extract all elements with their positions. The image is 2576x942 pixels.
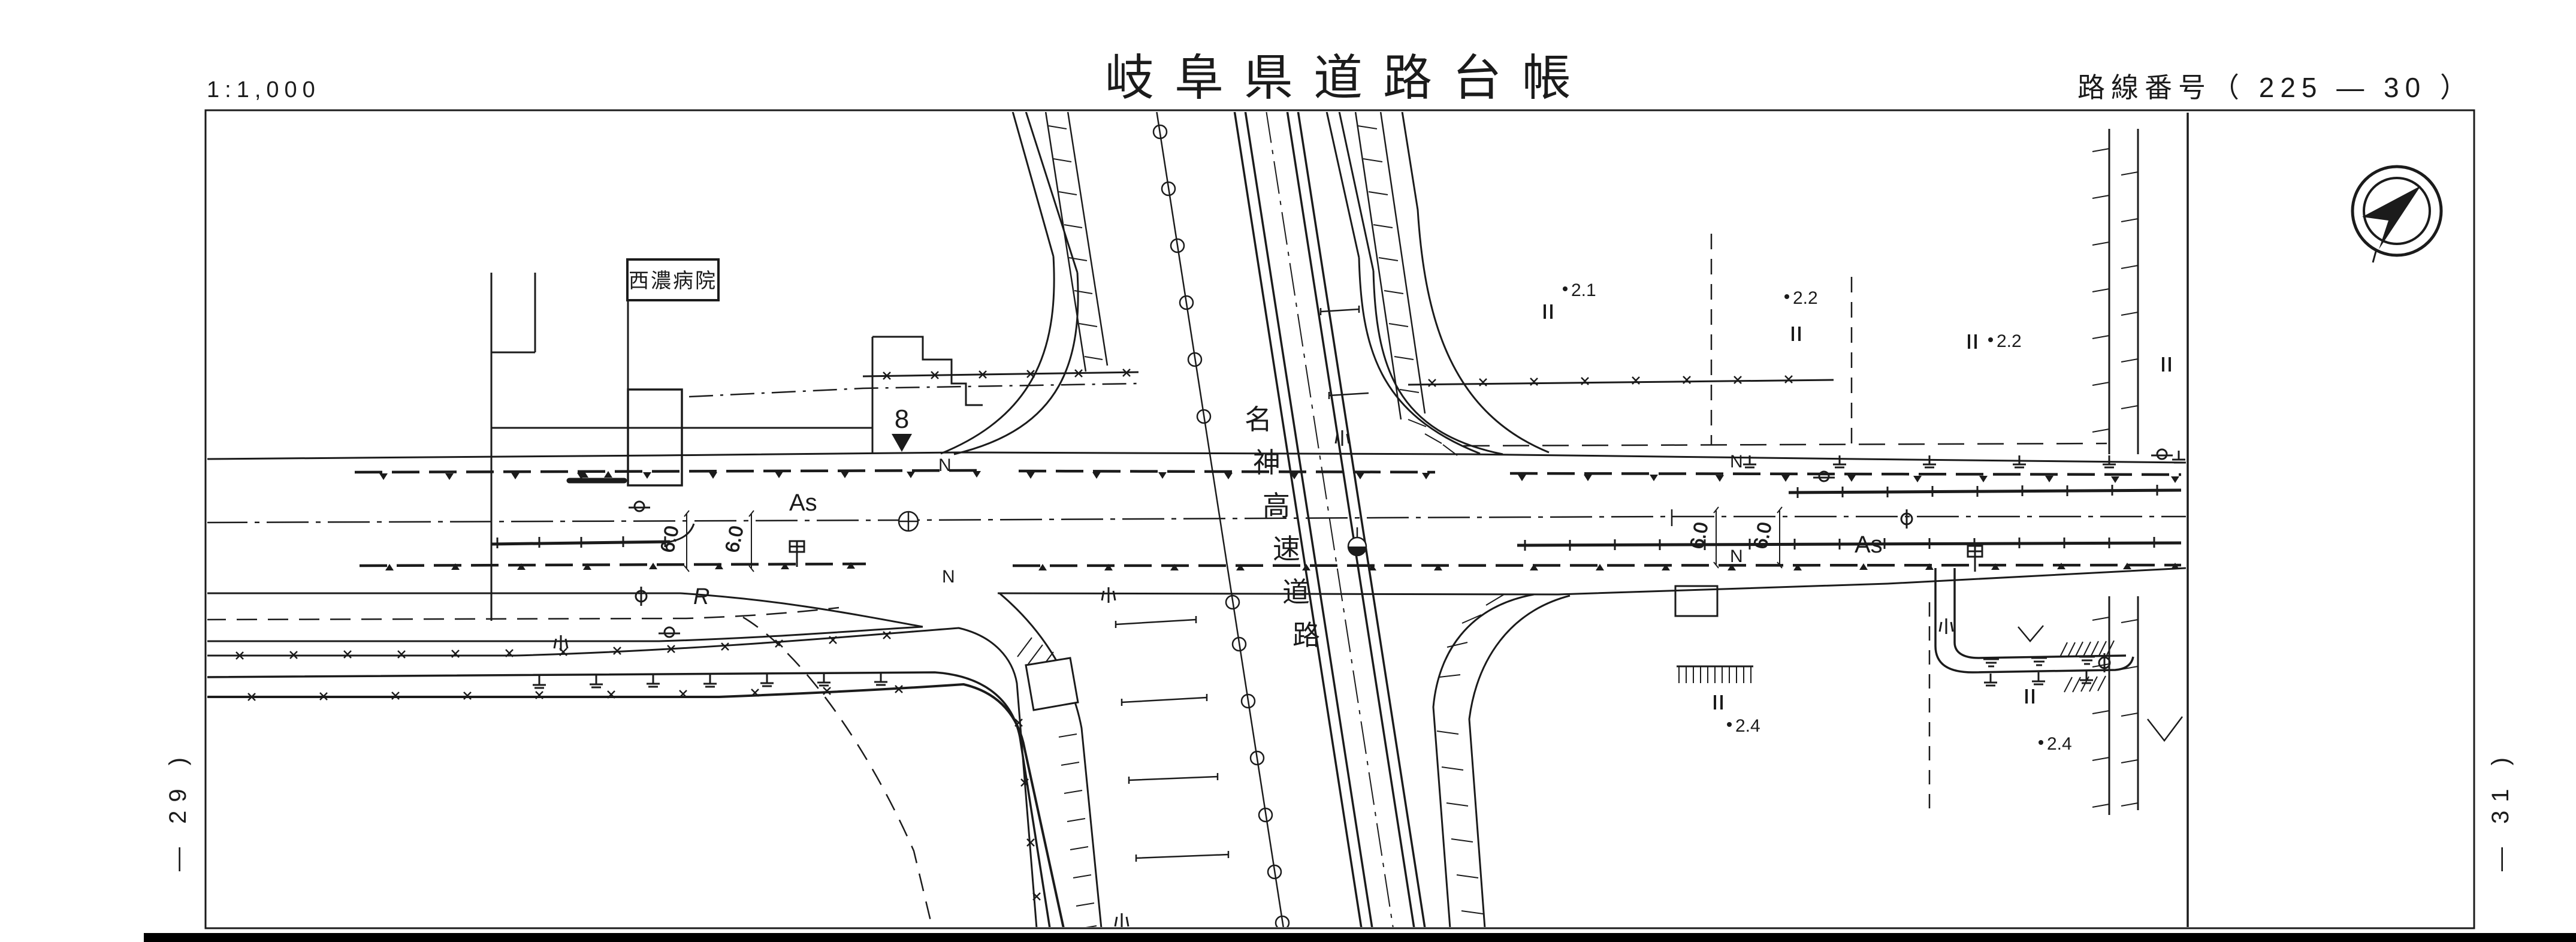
field-marks [1545, 304, 2170, 709]
utility-symbols [629, 449, 2173, 672]
nw-parcel-lines [491, 273, 983, 621]
expressway-char: 路 [1292, 620, 1320, 651]
expressway-char: 速 [1273, 533, 1300, 564]
station-marker: 8 [892, 404, 912, 452]
width-label: 6.0 [1686, 520, 1712, 551]
utility-pole-icon [1901, 509, 1912, 529]
road-south-edge-east [998, 568, 2186, 594]
sheet-link-right: — 31 ) [2487, 749, 2514, 871]
station-triangle-icon [892, 434, 912, 452]
route-number: 路線番号（ 225 — 30 ） [2077, 72, 2474, 103]
sheet-link-left: — 29 ) [165, 749, 191, 871]
width-label: 6.0 [1749, 520, 1775, 551]
sheet-bottom-edge [144, 933, 2576, 942]
expressway-char: 高 [1263, 490, 1290, 521]
lane-label: N [1730, 547, 1743, 566]
expressway-char: 神 [1253, 447, 1281, 478]
spot-elevation: 2.1 [1571, 280, 1596, 300]
scale-label: 1:1,000 [207, 77, 321, 102]
lane-label: N [942, 567, 955, 587]
hospital-block: 西濃病院 [627, 259, 718, 300]
nw-slip-arc [954, 273, 1078, 454]
spot-elevation: 2.2 [1793, 288, 1818, 308]
station-number: 8 [895, 404, 909, 434]
lane-label: N [1730, 452, 1743, 472]
width-label: 6.0 [721, 524, 747, 554]
branch-road [206, 593, 1101, 929]
branch-east-edge [999, 593, 1101, 928]
expressway-char: 道 [1282, 576, 1310, 608]
se-retaining-wall [1929, 568, 2182, 809]
manhole-icon [659, 627, 680, 637]
width-label: 6.0 [656, 524, 682, 554]
vegetation-marks [554, 430, 1953, 929]
manhole-icon [2151, 449, 2173, 459]
main-road [206, 452, 2186, 627]
spot-elevation: 2.4 [2047, 734, 2072, 754]
curve-label: R [693, 584, 709, 609]
east-vertical-road [2092, 113, 2188, 928]
se-slip-arc [1433, 594, 1534, 928]
surface-label-east: As [1855, 532, 1883, 558]
curve-boundary [743, 617, 932, 928]
road-center-line [206, 517, 2186, 523]
hospital-label: 西濃病院 [629, 270, 717, 292]
spot-elevation: 2.2 [1997, 331, 2022, 351]
parcel-boundary-dashes [1463, 443, 2107, 446]
nw-fence [689, 369, 1138, 397]
west-tie-lines [1116, 616, 1228, 862]
branch-south-edge [206, 684, 1064, 928]
sheet-frame [206, 110, 2474, 928]
embankment-toe [1675, 586, 1753, 683]
expressway-char: 名 [1245, 404, 1272, 435]
road-south-curb [360, 564, 2181, 566]
expressway-name: 名 神 高 速 道 路 [1245, 404, 1320, 651]
north-arrow-icon [2352, 167, 2441, 262]
spot-elevation: 2.4 [1735, 716, 1760, 736]
road-ledger-sheet: 1:1,000 岐阜県道路台帳 路線番号（ 225 — 30 ） — 29 ) … [0, 0, 2576, 942]
east-outer-edge [1402, 111, 1549, 452]
guardrail-east-south [1517, 543, 2181, 545]
page-title: 岐阜県道路台帳 [1105, 51, 1591, 105]
utility-pole-icon [636, 587, 647, 606]
surface-label-west: As [789, 490, 817, 516]
manhole-icon [629, 502, 650, 511]
benchmark-icon [899, 512, 918, 531]
road-sign-icon [1968, 546, 1982, 572]
road-north-edge [206, 452, 2186, 463]
lane-label: N [938, 455, 952, 475]
guardrail-east-north [1789, 490, 2181, 493]
ne-fence [1408, 380, 1834, 385]
small-building [1026, 658, 1078, 710]
road-ledger-map: 1:1,000 岐阜県道路台帳 路線番号（ 225 — 30 ） — 29 ) … [0, 0, 2576, 942]
